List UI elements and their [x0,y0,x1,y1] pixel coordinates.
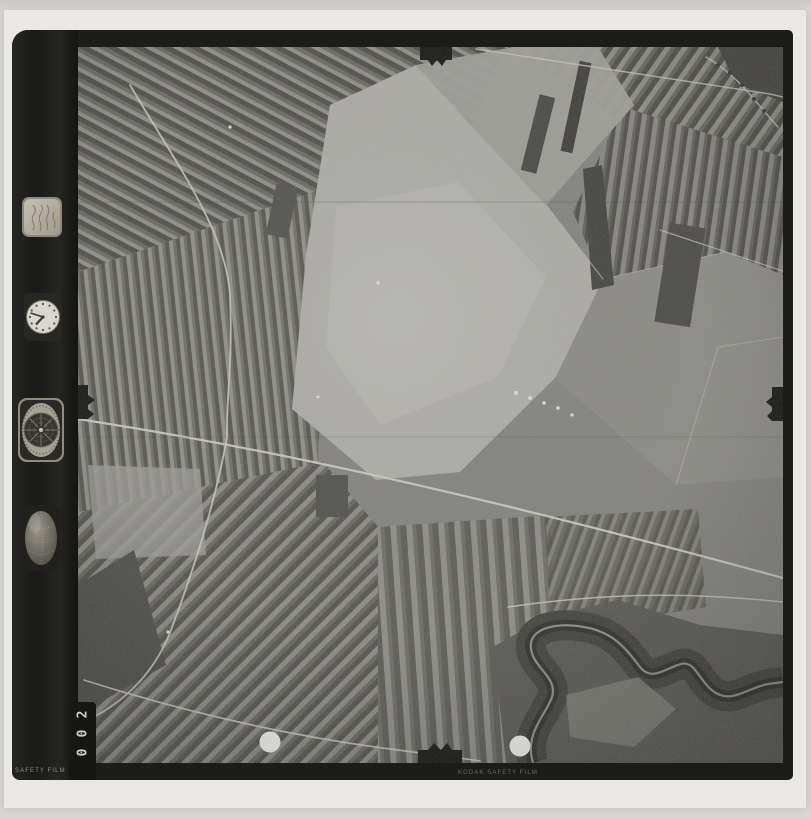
film-frame: 2 0 0 SAFETY FILM KODAK SAFETY FILM [12,30,793,780]
level-ball-icon [22,505,60,576]
clock-icon [24,293,62,346]
data-card-icon [22,197,62,242]
altimeter-icon [18,398,64,467]
page-top-shade [0,0,811,9]
film-edge-marking-left: SAFETY FILM [15,768,66,774]
aerial-photograph [78,47,783,763]
film-grain-overlay [78,47,783,763]
frame-counter-digit: 2 [73,705,92,725]
aerial-photo-canvas [78,47,783,763]
scanned-aerial-film-page: { "film_frame": { "frame_counter": { "va… [0,0,811,819]
film-edge-marking-center: KODAK SAFETY FILM [458,770,538,776]
frame-counter-digit: 0 [73,743,92,763]
frame-counter: 2 0 0 [69,702,96,780]
film-data-strip [12,30,78,780]
frame-counter-digit: 0 [73,724,92,744]
